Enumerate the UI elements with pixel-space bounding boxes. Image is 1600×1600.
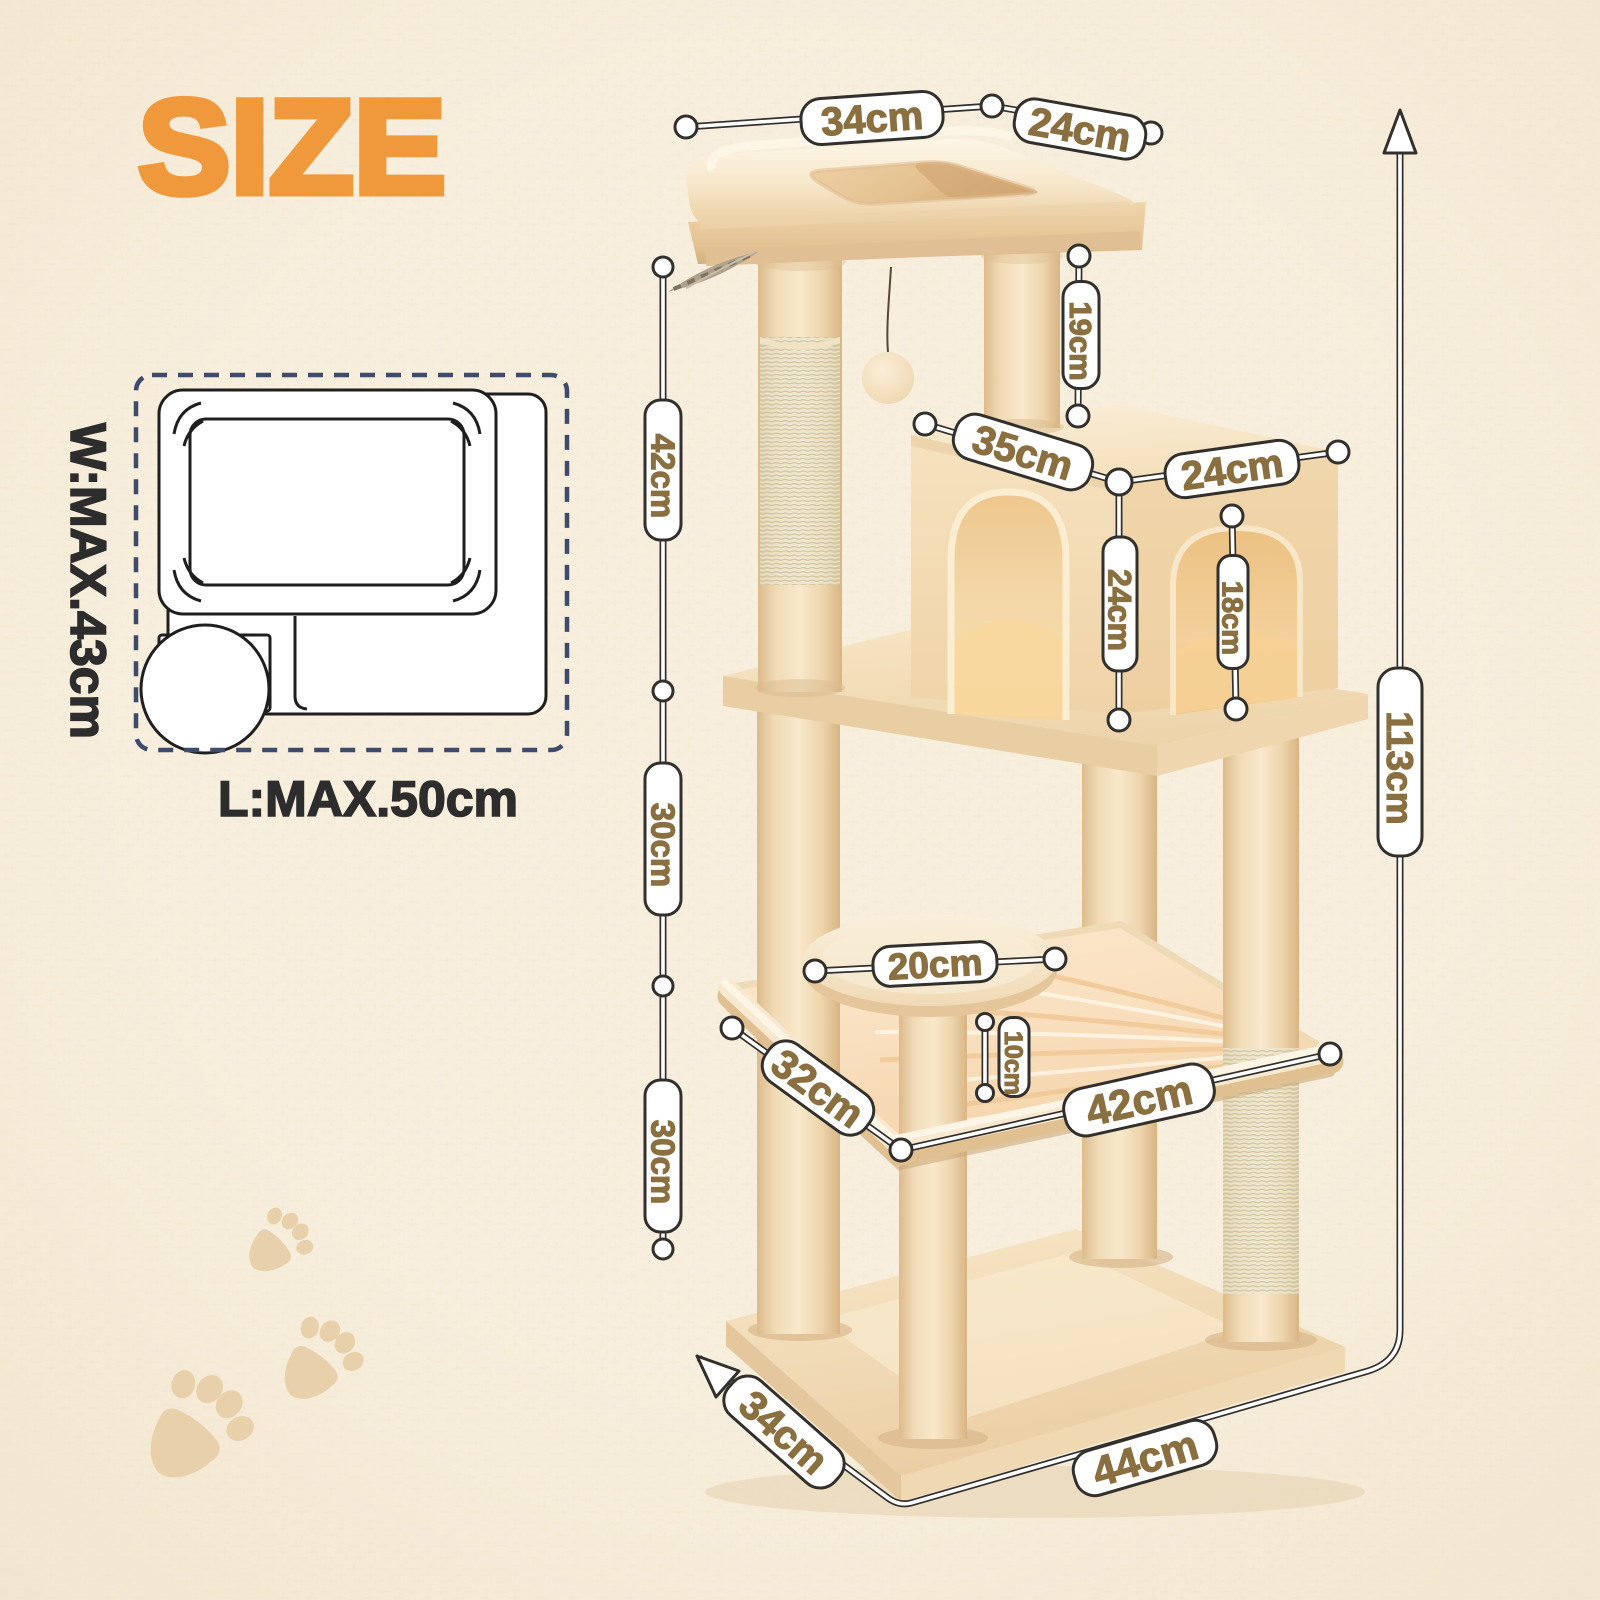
svg-text:113cm: 113cm (1379, 711, 1420, 824)
svg-text:SIZE: SIZE (138, 73, 446, 222)
svg-text:W:MAX.43cm: W:MAX.43cm (60, 423, 116, 739)
svg-text:20cm: 20cm (887, 942, 984, 988)
svg-text:24cm: 24cm (1102, 569, 1138, 651)
svg-text:34cm: 34cm (820, 94, 925, 145)
svg-text:10cm: 10cm (999, 1031, 1027, 1095)
svg-text:18cm: 18cm (1216, 581, 1248, 655)
svg-text:30cm: 30cm (644, 803, 681, 887)
svg-text:19cm: 19cm (1063, 301, 1098, 380)
svg-text:42cm: 42cm (644, 434, 681, 518)
svg-text:L:MAX.50cm: L:MAX.50cm (218, 771, 518, 827)
svg-text:30cm: 30cm (644, 1120, 681, 1204)
